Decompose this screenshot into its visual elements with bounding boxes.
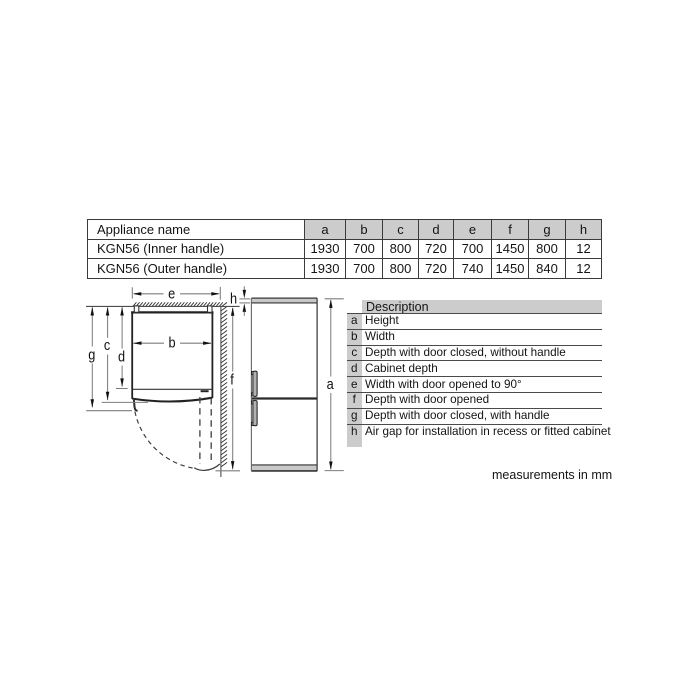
svg-text:a: a: [327, 376, 334, 392]
svg-text:g: g: [88, 347, 95, 363]
svg-text:e: e: [168, 286, 175, 302]
svg-text:b: b: [168, 335, 175, 351]
svg-text:c: c: [104, 337, 111, 353]
svg-text:f: f: [230, 372, 234, 388]
svg-text:d: d: [118, 349, 125, 365]
svg-text:h: h: [230, 291, 237, 307]
